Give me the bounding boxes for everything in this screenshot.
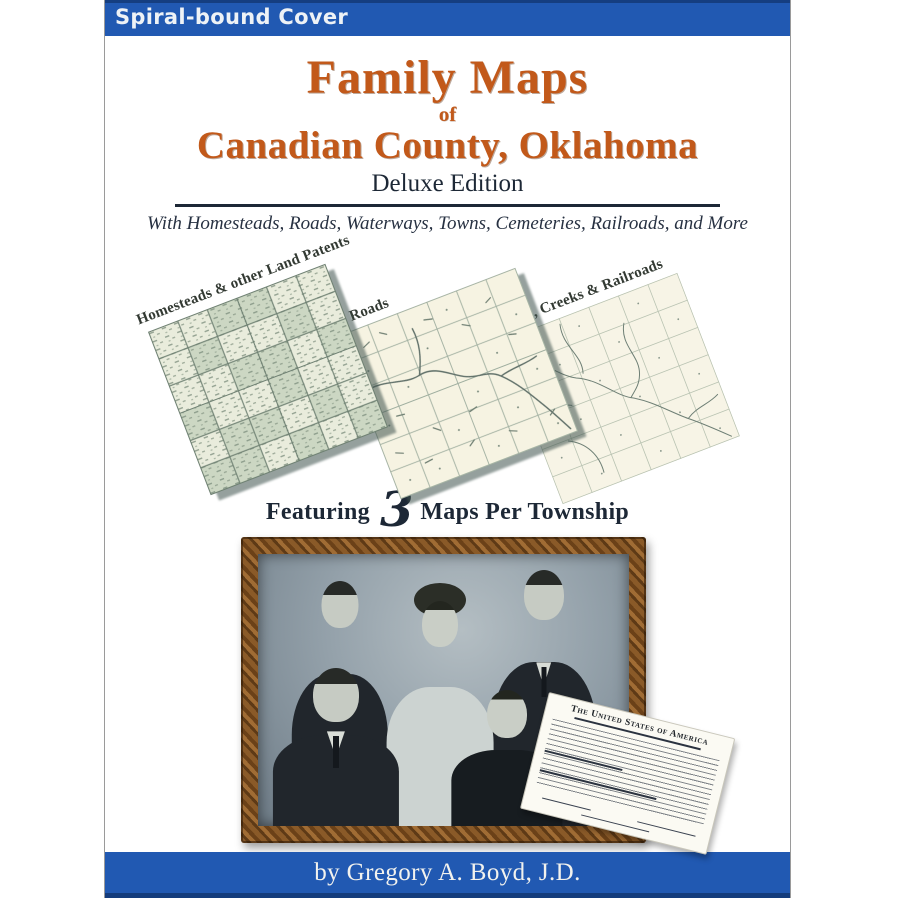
cover-type-banner: Spiral-bound Cover [105, 0, 790, 36]
patent-signature-line [637, 821, 696, 837]
featuring-suffix: Maps Per Township [420, 499, 629, 526]
person-head [321, 581, 358, 628]
person-head [487, 690, 527, 738]
person-tie [333, 736, 339, 768]
title-main: Family Maps [105, 54, 790, 103]
featuring-prefix: Featuring [266, 499, 370, 526]
featuring-line: Featuring 3 Maps Per Township [105, 486, 790, 538]
person-head [524, 570, 564, 620]
title-divider [175, 204, 720, 207]
person-head [422, 601, 458, 647]
title-connector: of [105, 104, 790, 125]
title-edition: Deluxe Edition [105, 171, 790, 197]
title-county: Canadian County, Oklahoma [105, 126, 790, 167]
map-thumbnail-homesteads: Homesteads & other Land Patents [148, 264, 388, 495]
title-block: Family Maps of Canadian County, Oklahoma… [105, 54, 790, 235]
patent-signature-line [542, 797, 591, 810]
book-cover: Spiral-bound Cover Family Maps of Canadi… [104, 0, 791, 898]
byline-text: by Gregory A. Boyd, J.D. [314, 859, 581, 887]
title-subtitle: With Homesteads, Roads, Waterways, Towns… [105, 213, 790, 235]
byline-bar: by Gregory A. Boyd, J.D. [105, 852, 790, 898]
photo-person [273, 668, 399, 826]
cover-type-label: Spiral-bound Cover [105, 3, 790, 29]
person-head [313, 668, 359, 722]
